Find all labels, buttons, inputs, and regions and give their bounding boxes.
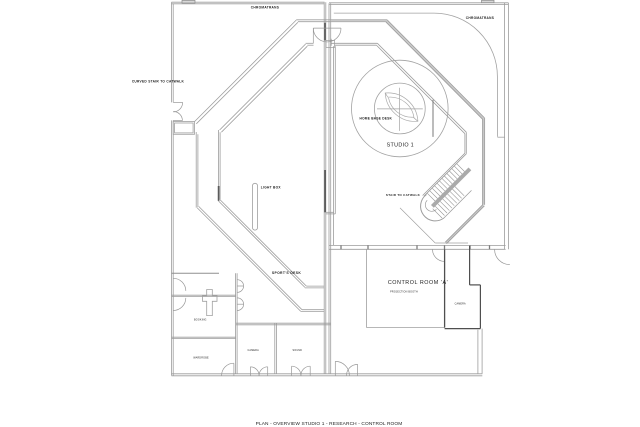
svg-text:CHROMATRANS: CHROMATRANS [251,6,279,10]
svg-text:CHROMATRANS: CHROMATRANS [466,16,494,20]
svg-text:WARDROBE: WARDROBE [193,357,209,360]
svg-text:HOME BASE DESK: HOME BASE DESK [360,117,393,121]
svg-text:CAMERA: CAMERA [455,303,466,306]
svg-text:STAIR TO CATWALK: STAIR TO CATWALK [386,193,421,197]
svg-text:PLAN - OVERVIEW STUDIO 1 - RES: PLAN - OVERVIEW STUDIO 1 - RESEARCH - CO… [256,421,403,427]
svg-text:BOOKING: BOOKING [194,319,207,322]
svg-text:STUDIO 1: STUDIO 1 [387,143,414,149]
svg-text:SOUND: SOUND [292,349,302,352]
svg-text:CONTROL ROOM 'A': CONTROL ROOM 'A' [388,280,448,286]
svg-text:CURVED STAIR TO CATWALK: CURVED STAIR TO CATWALK [132,80,185,84]
svg-text:LIGHT BOX: LIGHT BOX [261,186,282,190]
svg-text:CAMERA: CAMERA [247,349,259,352]
svg-text:PROJECTION BOOTH: PROJECTION BOOTH [390,291,418,294]
svg-text:SPORT'S DESK: SPORT'S DESK [272,271,302,275]
